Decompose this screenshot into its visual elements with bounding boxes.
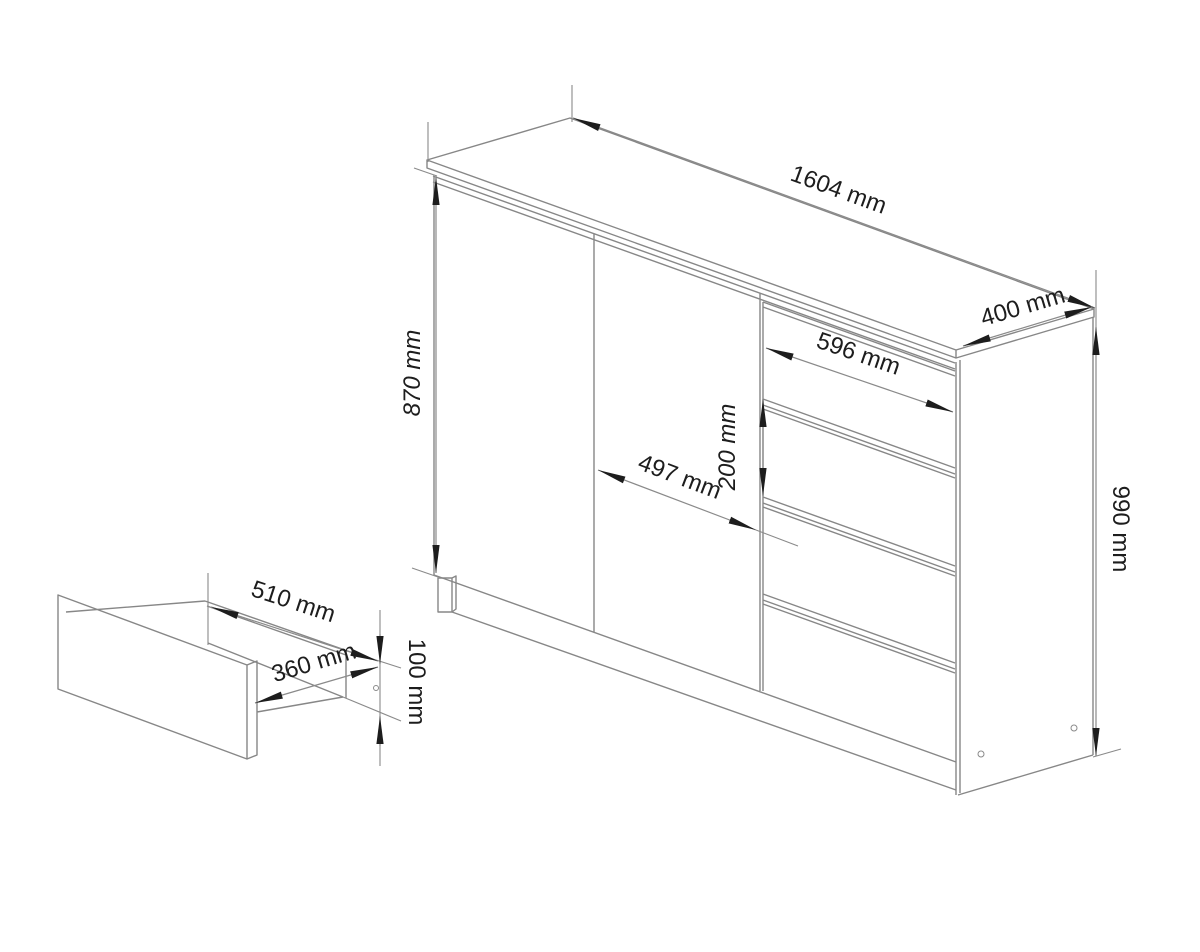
- dim-label-door-width: 497 mm: [634, 449, 725, 505]
- dim-label-cabinet-width: 1604 mm: [787, 160, 890, 220]
- furniture-technical-drawing: 1604 mm 400 mm 990 mm 870 mm 596 mm 497 …: [0, 0, 1200, 952]
- dim-label-cabinet-height: 990 mm: [1107, 486, 1134, 573]
- cabinet-drawing: [427, 118, 1094, 795]
- cabinet-plinth-and-leg: [438, 576, 956, 790]
- dim-line-cabinet-width: [573, 118, 1095, 308]
- cam-hole: [978, 751, 984, 757]
- cam-hole: [1071, 725, 1077, 731]
- dim-label-drawer-box-height: 100 mm: [403, 639, 430, 726]
- dim-label-drawer-front-height: 200 mm: [714, 404, 741, 492]
- dim-label-door-height: 870 mm: [399, 330, 426, 417]
- drawer-cam-hole: [374, 686, 379, 691]
- technical-drawing-page: 1604 mm 400 mm 990 mm 870 mm 596 mm 497 …: [0, 0, 1200, 952]
- dim-label-cabinet-depth: 400 mm: [977, 282, 1068, 332]
